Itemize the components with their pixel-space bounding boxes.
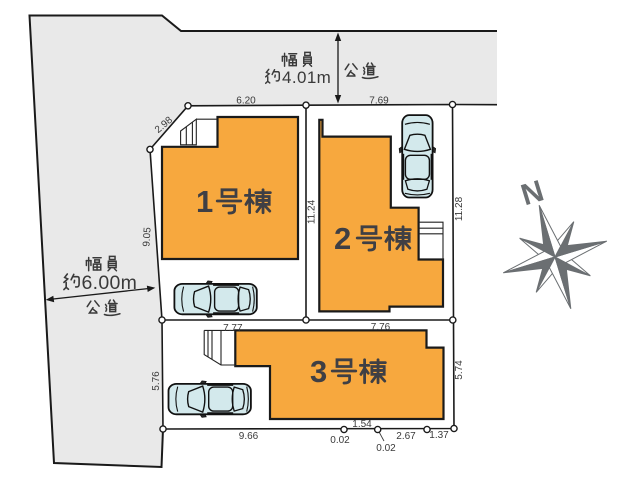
svg-text:7.76: 7.76: [371, 322, 391, 333]
svg-text:11.24: 11.24: [307, 199, 318, 224]
svg-text:7.69: 7.69: [369, 96, 389, 107]
svg-text:9.66: 9.66: [239, 431, 259, 442]
svg-text:7.77: 7.77: [223, 323, 243, 334]
svg-text:1.54: 1.54: [352, 419, 372, 430]
svg-text:0.02: 0.02: [330, 435, 350, 446]
svg-text:6.20: 6.20: [236, 96, 256, 107]
svg-text:5.76: 5.76: [151, 371, 162, 391]
svg-text:3: 3: [310, 354, 327, 389]
svg-text:11.28: 11.28: [454, 196, 465, 221]
svg-text:4.01m: 4.01m: [282, 68, 331, 87]
svg-text:1: 1: [196, 184, 213, 219]
svg-text:9.05: 9.05: [141, 227, 153, 248]
svg-text:2.67: 2.67: [396, 431, 416, 442]
svg-text:6.00m: 6.00m: [82, 272, 138, 294]
svg-text:5.74: 5.74: [454, 360, 465, 380]
svg-text:1.37: 1.37: [429, 430, 449, 441]
svg-text:2: 2: [334, 221, 351, 256]
svg-text:0.02: 0.02: [376, 443, 396, 454]
